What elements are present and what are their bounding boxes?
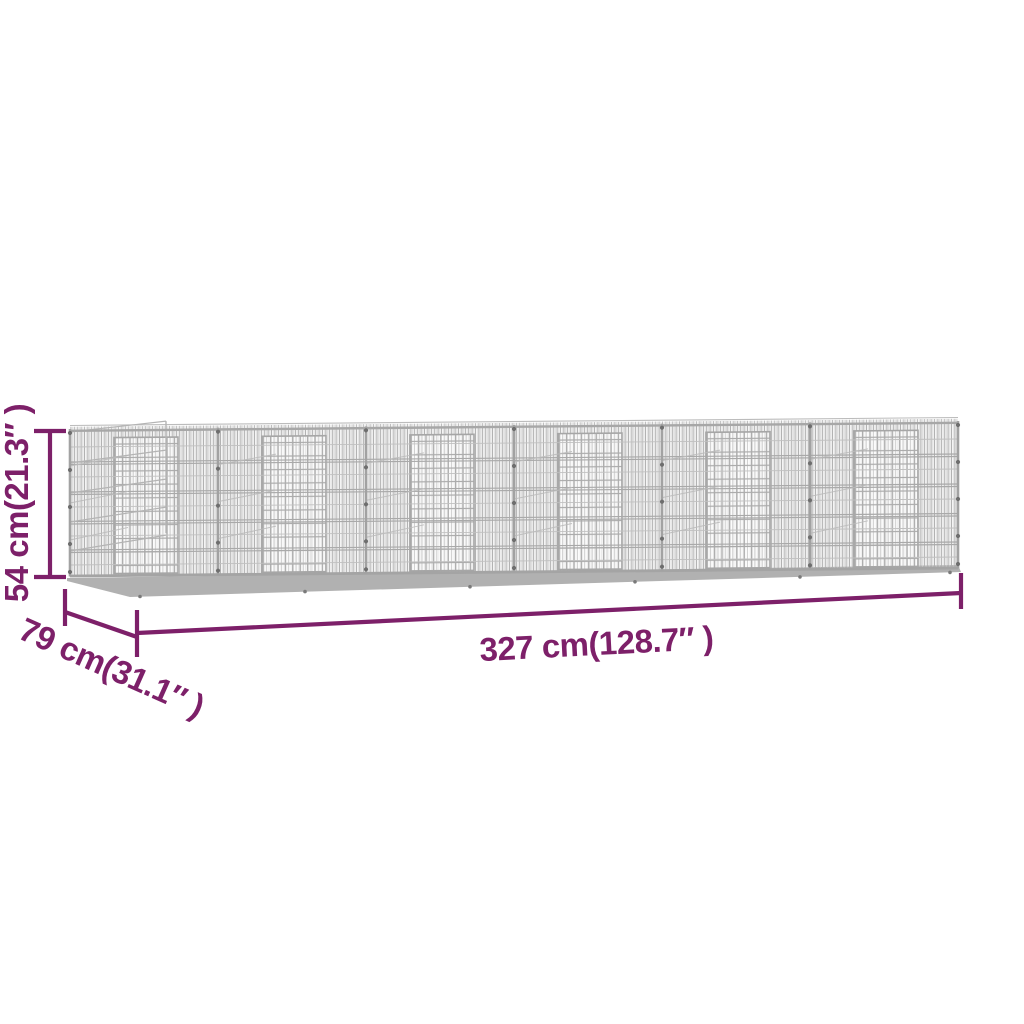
product-image: 54 cm(21.3″ ) 79 cm(31.1″ ) 327 cm(128.7… [0, 0, 1024, 1024]
width-dimension-label: 327 cm(128.7″ ) [479, 619, 715, 668]
cage-front-mesh [68, 414, 960, 577]
wire-cage-illustration [67, 414, 961, 598]
product-dimension-illustration: 54 cm(21.3″ ) 79 cm(31.1″ ) 327 cm(128.7… [0, 0, 1024, 1024]
height-dimension-line [34, 431, 66, 577]
height-dimension-label: 54 cm(21.3″ ) [0, 404, 35, 602]
